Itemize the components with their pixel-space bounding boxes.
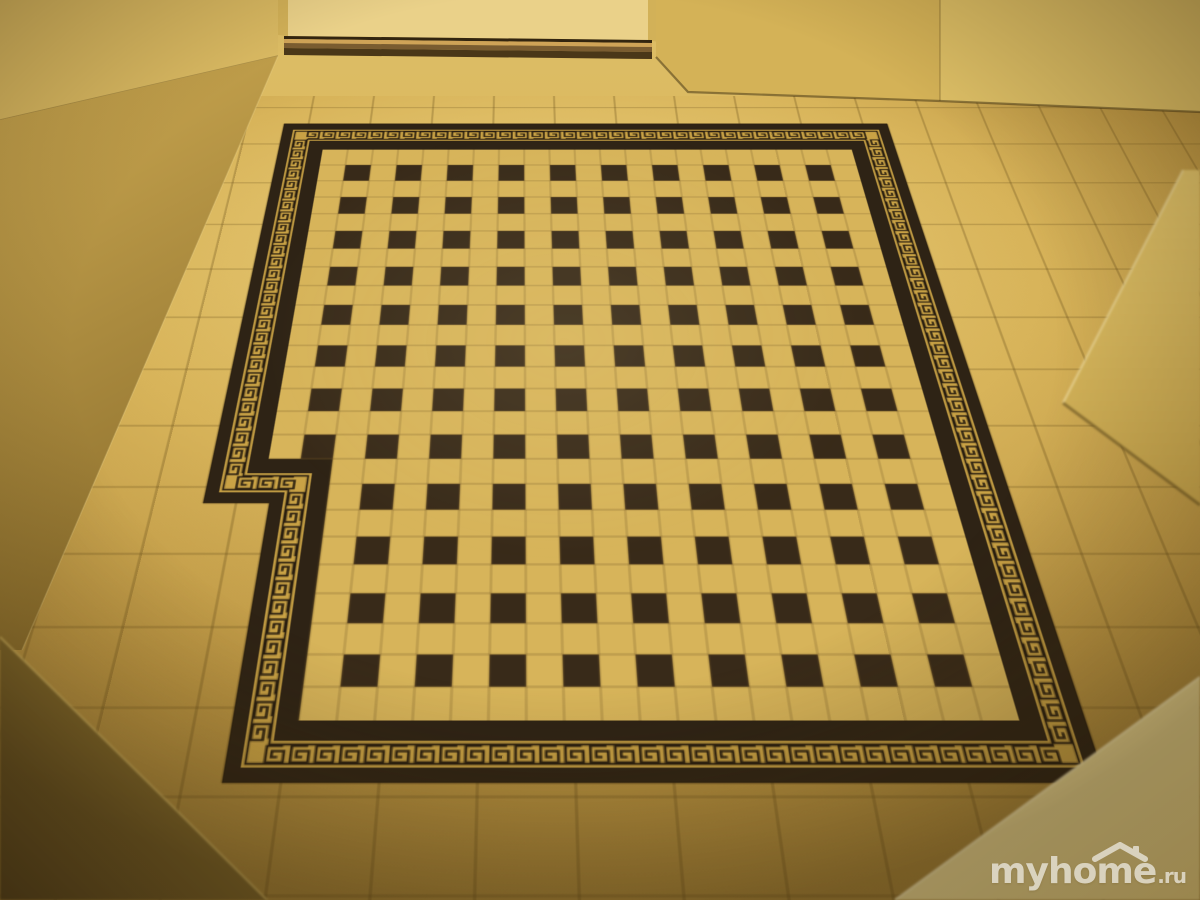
wall-left <box>0 56 278 650</box>
wall-foreground-left <box>0 637 267 900</box>
watermark-suffix: .ru <box>1157 864 1186 888</box>
roof-icon <box>1091 842 1149 862</box>
walls-svg <box>0 0 1200 900</box>
photo-scene: myhome.ru <box>0 0 1200 900</box>
wall-top-right-b <box>940 0 1200 112</box>
walls-layer <box>0 0 1200 900</box>
door-panel <box>288 0 648 40</box>
wall-right-column <box>1063 170 1200 505</box>
wall-top-right-a <box>656 0 940 101</box>
door <box>278 0 658 59</box>
door-jamb-left <box>278 0 288 36</box>
watermark: myhome.ru <box>989 854 1186 890</box>
